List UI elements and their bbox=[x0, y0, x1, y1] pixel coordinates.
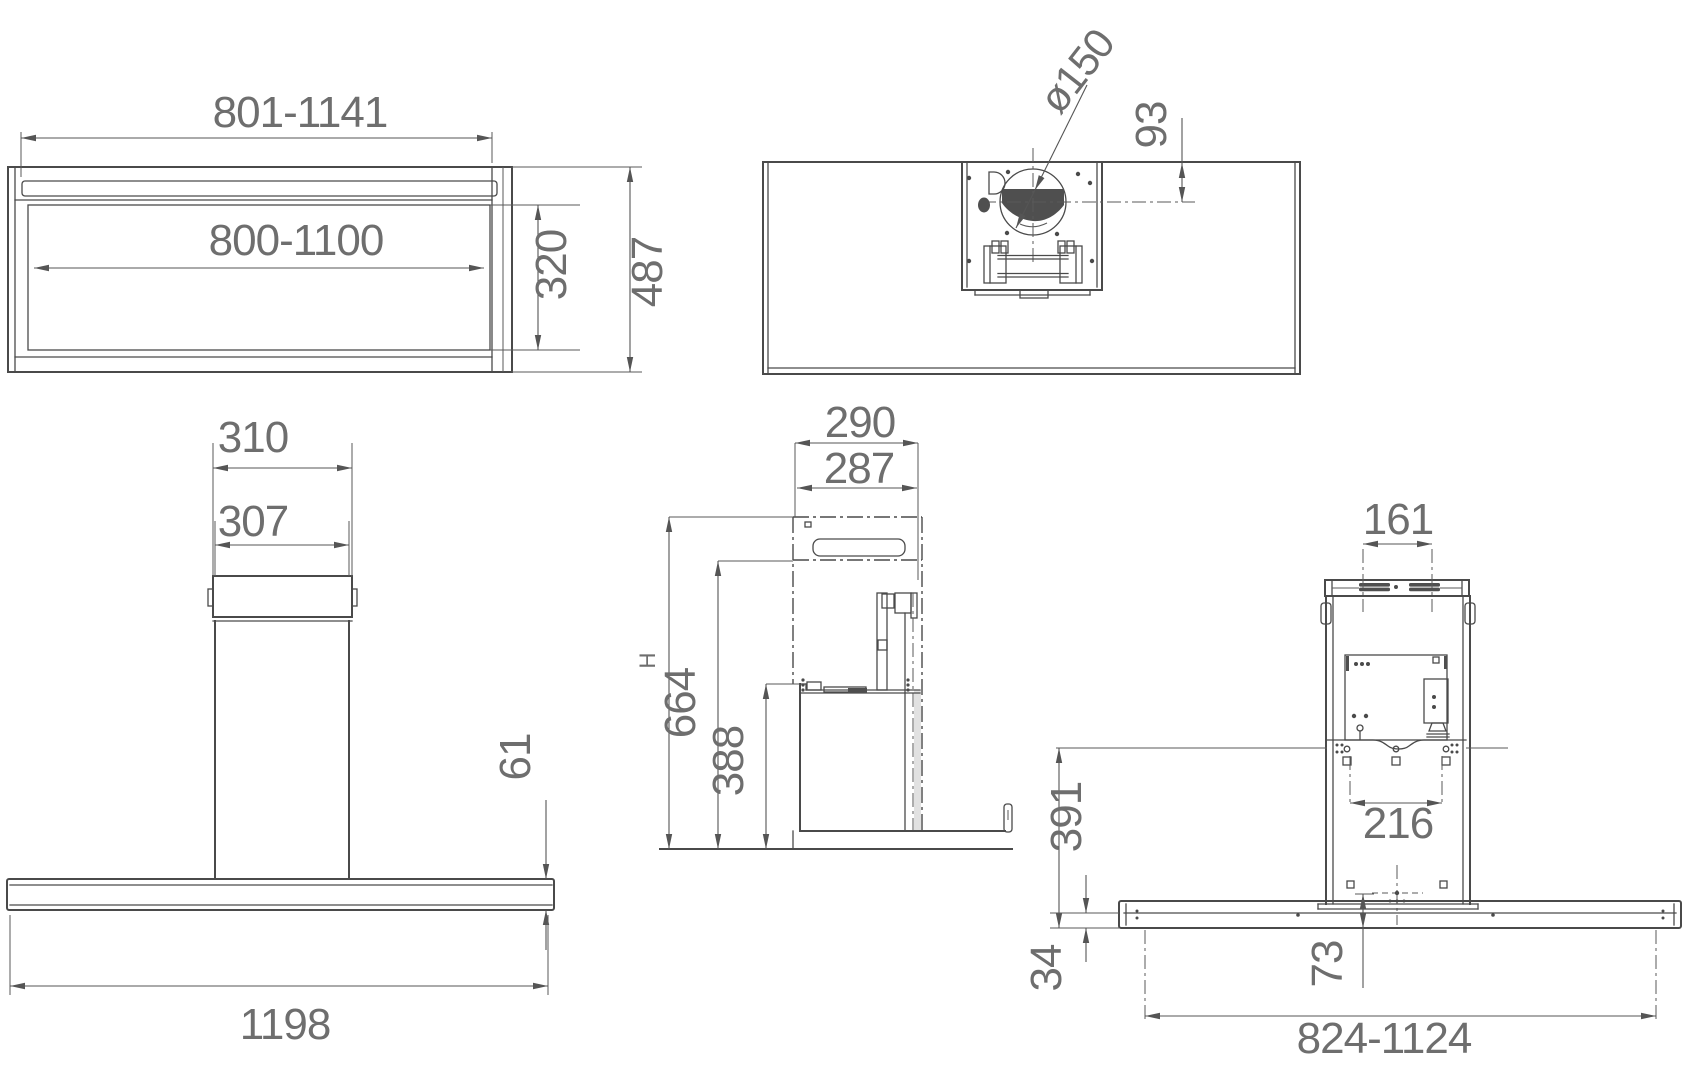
chimney-housing-top bbox=[962, 148, 1195, 298]
dim-cap-outer-width: 310 bbox=[218, 413, 288, 462]
dim-frame-inner-height: 320 bbox=[527, 230, 576, 300]
side-view: 290 287 H 664 388 bbox=[635, 398, 1012, 849]
dim-depth-inner: 287 bbox=[824, 444, 894, 493]
dim-canopy-edge-height: 34 bbox=[1022, 944, 1071, 991]
canopy bbox=[7, 879, 554, 910]
access-panel bbox=[1345, 655, 1449, 740]
lift-mechanism bbox=[801, 593, 921, 830]
chimney-cap bbox=[213, 576, 352, 617]
front-view: 310 307 61 1198 bbox=[7, 413, 554, 1049]
plan-view: ø150 93 bbox=[763, 20, 1300, 374]
light-strip bbox=[22, 181, 497, 196]
dim-mounting-span: 824-1124 bbox=[1297, 1014, 1472, 1063]
anchor-bolts bbox=[1336, 744, 1459, 766]
dim-canopy-width: 1198 bbox=[240, 1000, 331, 1049]
rear-view: 161 216 391 34 73 824-1124 bbox=[1022, 495, 1681, 1063]
control-box bbox=[1424, 679, 1448, 723]
vent-slot bbox=[1359, 583, 1390, 587]
dim-frame-total-height: 487 bbox=[623, 237, 672, 307]
dim-vent-spacing: 161 bbox=[1363, 495, 1433, 544]
dim-frame-width-inner: 800-1100 bbox=[209, 216, 384, 265]
dim-center-offset: 73 bbox=[1303, 941, 1352, 988]
bracket-tab bbox=[1020, 290, 1048, 298]
dim-height-lower: 388 bbox=[704, 726, 753, 796]
vent-slot bbox=[1409, 583, 1440, 587]
dim-bolt-spacing: 216 bbox=[1363, 799, 1433, 848]
rear-canopy bbox=[1119, 901, 1681, 928]
grommet bbox=[978, 198, 990, 213]
dim-duct-offset: 93 bbox=[1127, 102, 1176, 149]
dim-depth-outer: 290 bbox=[825, 398, 895, 447]
dim-duct-diameter: ø150 bbox=[1030, 20, 1124, 121]
cable-bracket bbox=[989, 172, 1005, 194]
dim-height-upper: 664 bbox=[656, 667, 705, 738]
dimension-drawing: 801-1141 800-1100 320 487 bbox=[0, 0, 1688, 1079]
rear-cap bbox=[1325, 580, 1469, 596]
dim-canopy-thickness: 61 bbox=[491, 734, 540, 781]
dim-height-total: H bbox=[635, 653, 660, 668]
front-top-view: 801-1141 800-1100 320 487 bbox=[8, 88, 672, 372]
dim-back-panel-height: 391 bbox=[1042, 782, 1091, 852]
dim-cap-inner-width: 307 bbox=[218, 497, 288, 546]
drawing-canvas: 801-1141 800-1100 320 487 bbox=[0, 0, 1688, 1079]
dim-frame-width-outer: 801-1141 bbox=[213, 88, 388, 137]
handle-slot bbox=[813, 539, 905, 556]
scallop-edge bbox=[1327, 740, 1466, 749]
